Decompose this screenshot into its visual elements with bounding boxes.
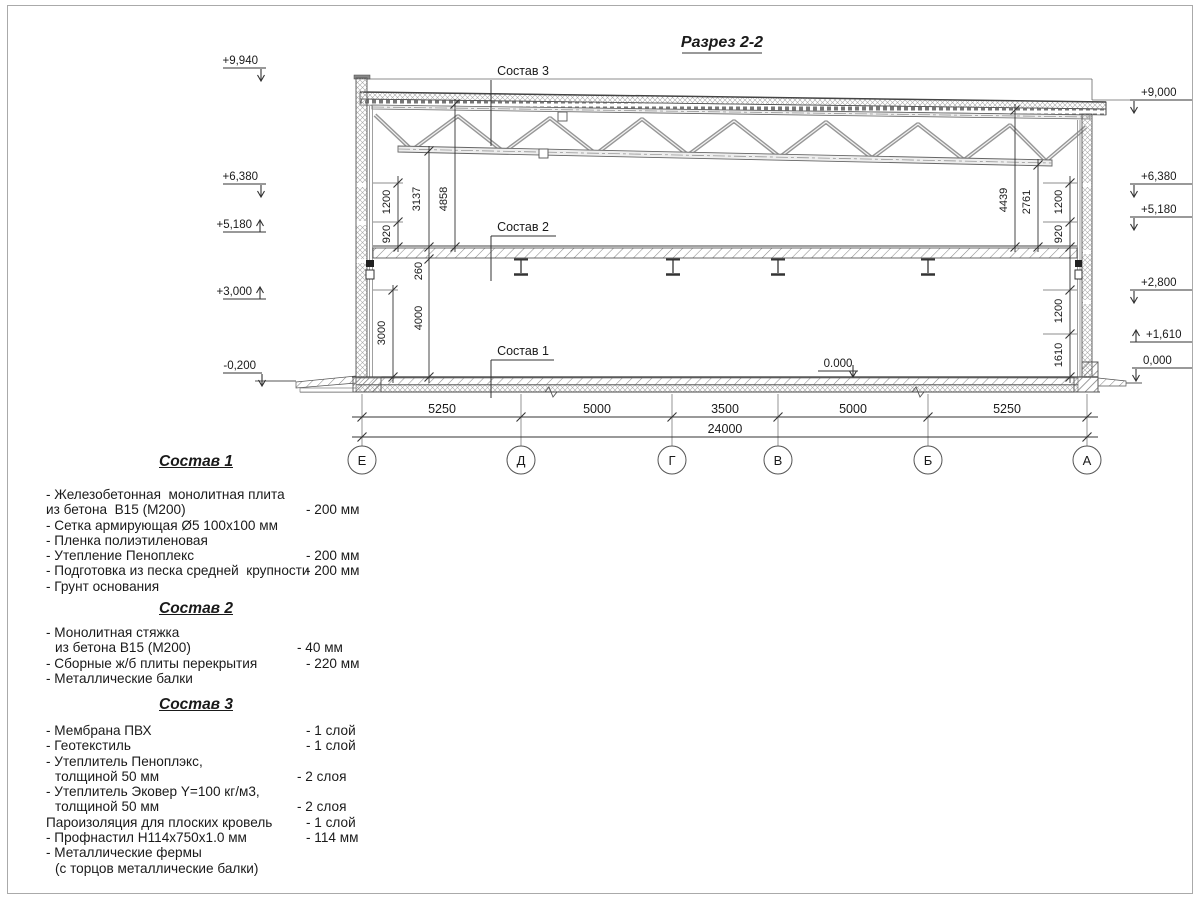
ground-slab — [300, 377, 1100, 397]
vertical-dimensions — [393, 99, 1070, 383]
elevation-mark: +1,610 — [1130, 329, 1192, 342]
svg-text:4000: 4000 — [413, 306, 425, 330]
legend-row: - Монолитная стяжка — [46, 625, 376, 640]
svg-text:+9,940: +9,940 — [223, 55, 259, 67]
svg-text:+6,380: +6,380 — [1141, 171, 1177, 183]
grid-axes: Е Д Г В Б А — [348, 446, 1101, 474]
svg-text:Г: Г — [668, 453, 675, 468]
legend-row: - Сетка армирующая Ø5 100х100 мм — [46, 518, 376, 533]
svg-text:5000: 5000 — [583, 402, 611, 416]
svg-text:2761: 2761 — [1021, 190, 1033, 214]
svg-text:5250: 5250 — [428, 402, 456, 416]
svg-text:+2,800: +2,800 — [1141, 277, 1177, 289]
left-wall — [354, 75, 374, 377]
svg-text:1200: 1200 — [381, 190, 393, 214]
foundation-right — [1074, 362, 1142, 392]
legend-row: (с торцов металлические балки) — [46, 861, 376, 876]
floor-slab — [373, 246, 1077, 258]
axis-circle: А — [1073, 446, 1101, 474]
elevation-mark: +9,940 — [223, 55, 267, 81]
svg-text:260: 260 — [413, 262, 425, 280]
elevation-mark: -0,200 — [223, 360, 266, 386]
svg-text:Состав 1: Состав 1 — [497, 344, 549, 358]
svg-text:0,000: 0,000 — [1143, 355, 1172, 367]
svg-text:920: 920 — [1053, 225, 1065, 243]
roof-assembly — [360, 92, 1106, 119]
legend-row: - Утеплитель Эковер Y=100 кг/м3, — [46, 784, 376, 799]
legend-row: - Профнастил Н114х750х1.0 мм- 114 мм — [46, 830, 376, 845]
elevation-mark: +3,000 — [217, 286, 267, 299]
svg-text:4439: 4439 — [998, 188, 1010, 212]
legend-section-2: Состав 2 - Монолитная стяжка из бетона В… — [46, 599, 376, 686]
svg-text:5000: 5000 — [839, 402, 867, 416]
zero-level-mark: 0.000 — [818, 358, 858, 377]
svg-text:+3,000: +3,000 — [217, 286, 253, 298]
svg-text:В: В — [774, 453, 783, 468]
svg-text:3137: 3137 — [411, 187, 423, 211]
legend-heading: Состав 2 — [46, 599, 346, 618]
legend-row: из бетона В15 (М200)- 200 мм — [46, 502, 376, 517]
svg-text:1200: 1200 — [1053, 299, 1065, 323]
elevation-mark: +6,380 — [223, 171, 267, 197]
svg-text:А: А — [1083, 453, 1092, 468]
svg-text:24000: 24000 — [708, 422, 743, 436]
legend-heading: Состав 3 — [46, 695, 346, 714]
elevation-mark: +2,800 — [1130, 277, 1192, 303]
elevation-mark: 0,000 — [1132, 355, 1192, 381]
page-title: Разрез 2-2 — [681, 34, 763, 51]
bottom-dimensions: 5250 5000 3500 5000 5250 24000 — [352, 394, 1098, 446]
svg-text:+9,000: +9,000 — [1141, 87, 1177, 99]
legend-row: - Металлические балки — [46, 671, 376, 686]
legend-row: - Мембрана ПВХ- 1 слой — [46, 723, 376, 738]
legend-row: из бетона В15 (М200)- 40 мм — [46, 640, 376, 655]
elevation-marks-left: +9,940 +6,380 +5,180 +3,000 -0,200 — [217, 55, 267, 386]
axis-circle: Б — [914, 446, 942, 474]
legend-value: - 40 мм — [297, 640, 343, 655]
legend-row: - Подготовка из песка средней крупности-… — [46, 563, 376, 578]
truss-bottom-chord — [398, 146, 1052, 166]
legend-value: - 220 мм — [306, 656, 359, 671]
legend-value: - 1 слой — [306, 815, 356, 830]
legend-row: - Утеплитель Пеноплэкс, — [46, 754, 376, 769]
extension-lines — [373, 183, 1077, 334]
steel-beams — [514, 260, 935, 275]
legend-row: - Геотекстиль- 1 слой — [46, 738, 376, 753]
steel-truss — [375, 112, 1086, 166]
vertical-dimension-labels: 1200 920 3137 4858 260 4000 3000 4439 27… — [376, 187, 1065, 367]
svg-text:5250: 5250 — [993, 402, 1021, 416]
legend-value: - 1 слой — [306, 738, 356, 753]
drawing-sheet: Разрез 2-2 — [0, 0, 1200, 900]
legend-row: - Грунт основания — [46, 579, 376, 594]
foundation-left — [255, 376, 381, 392]
svg-text:-0,200: -0,200 — [223, 360, 256, 372]
svg-text:+6,380: +6,380 — [223, 171, 259, 183]
legend-value: - 2 слоя — [297, 769, 346, 784]
legend-row: - Утепление Пеноплекс- 200 мм — [46, 548, 376, 563]
legend-row: толщиной 50 мм- 2 слоя — [46, 769, 376, 784]
legend-row: - Пленка полиэтиленовая — [46, 533, 376, 548]
svg-text:920: 920 — [381, 225, 393, 243]
legend-row: Пароизоляция для плоских кровель- 1 слой — [46, 815, 376, 830]
legend-value: - 200 мм — [306, 548, 359, 563]
legend-row: толщиной 50 мм- 2 слоя — [46, 799, 376, 814]
svg-text:+5,180: +5,180 — [217, 219, 253, 231]
axis-circle: Г — [658, 446, 686, 474]
axis-circle: В — [764, 446, 792, 474]
elevation-mark: +6,380 — [1130, 171, 1192, 197]
legend-value: - 200 мм — [306, 563, 359, 578]
legend-row: - Сборные ж/б плиты перекрытия- 220 мм — [46, 656, 376, 671]
legend-row: - Железобетонная монолитная плита — [46, 487, 376, 502]
elevation-marks-right: +9,000 +6,380 +5,180 +2,800 +1,610 0,000 — [1130, 87, 1192, 381]
legend-value: - 114 мм — [306, 830, 358, 845]
svg-text:1200: 1200 — [1053, 190, 1065, 214]
svg-text:0.000: 0.000 — [824, 358, 853, 370]
legend-section-3: Состав 3 - Мембрана ПВХ- 1 слой - Геотек… — [46, 695, 376, 876]
svg-text:Б: Б — [924, 453, 933, 468]
svg-text:4858: 4858 — [438, 187, 450, 211]
right-wall — [1075, 114, 1092, 377]
svg-text:1610: 1610 — [1053, 343, 1065, 367]
legend-section-1: Состав 1 - Железобетонная монолитная пли… — [46, 452, 376, 594]
legend-row: - Металлические фермы — [46, 845, 376, 860]
svg-text:3500: 3500 — [711, 402, 739, 416]
svg-text:Состав 2: Состав 2 — [497, 220, 549, 234]
legend-heading: Состав 1 — [46, 452, 346, 471]
elevation-mark: +5,180 — [1130, 204, 1192, 230]
elevation-mark: +9,000 — [1130, 87, 1192, 113]
svg-text:+5,180: +5,180 — [1141, 204, 1177, 216]
axis-circle: Д — [507, 446, 535, 474]
elevation-mark: +5,180 — [217, 219, 267, 232]
svg-text:Д: Д — [517, 453, 526, 468]
svg-text:3000: 3000 — [376, 321, 388, 345]
legend-value: - 2 слоя — [297, 799, 346, 814]
svg-text:+1,610: +1,610 — [1146, 329, 1182, 341]
legend-value: - 200 мм — [306, 502, 359, 517]
legend-value: - 1 слой — [306, 723, 356, 738]
svg-text:Состав 3: Состав 3 — [497, 64, 549, 78]
